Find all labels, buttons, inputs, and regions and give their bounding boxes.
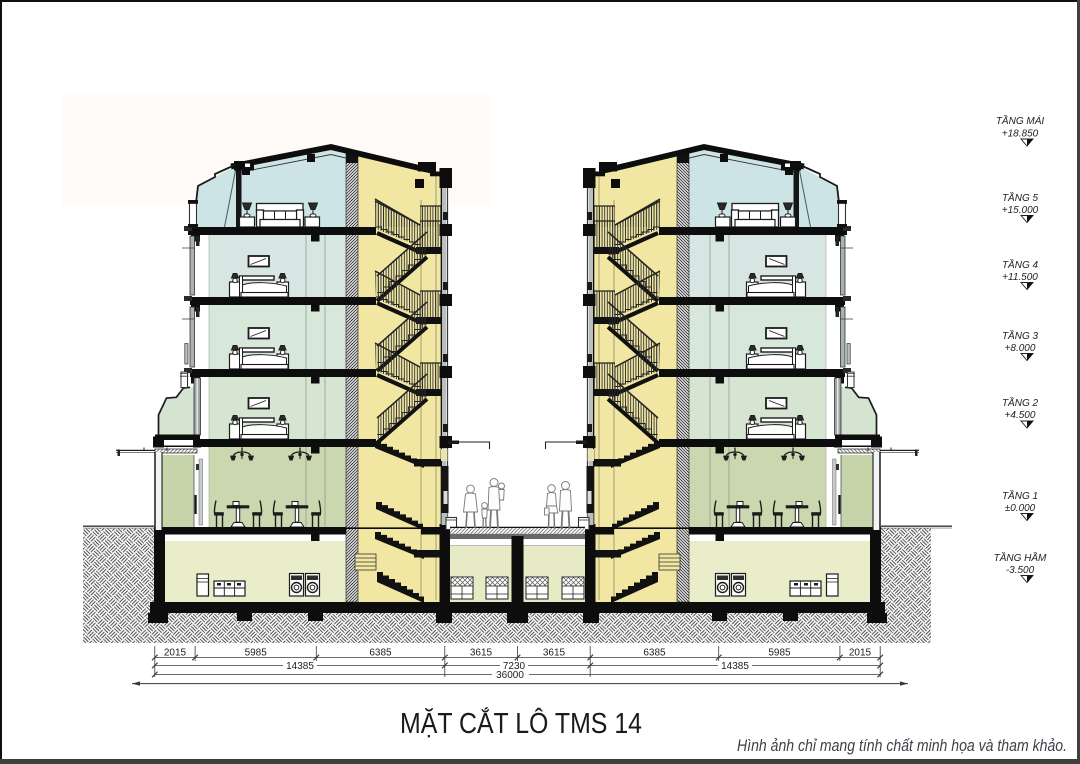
svg-text:2015: 2015 [164,648,187,659]
svg-text:5985: 5985 [245,648,268,659]
svg-text:36000: 36000 [496,670,524,681]
svg-text:TẦNG 1: TẦNG 1 [1002,489,1038,502]
svg-text:+4.500: +4.500 [1005,410,1036,421]
svg-text:2015: 2015 [849,648,872,659]
svg-text:TẦNG 5: TẦNG 5 [1002,191,1039,204]
svg-text:TẦNG MÁI: TẦNG MÁI [996,114,1045,127]
svg-text:+15.000: +15.000 [1002,205,1039,216]
svg-text:TẦNG 3: TẦNG 3 [1002,329,1039,342]
svg-text:14385: 14385 [286,661,314,672]
svg-text:TẦNG 4: TẦNG 4 [1002,258,1039,271]
svg-text:3615: 3615 [470,648,493,659]
svg-text:3615: 3615 [543,648,566,659]
svg-text:+18.850: +18.850 [1002,129,1039,140]
svg-text:TẦNG HẦM: TẦNG HẦM [994,551,1047,564]
svg-text:6385: 6385 [643,648,666,659]
svg-text:Hình ảnh chỉ mang tính chất mi: Hình ảnh chỉ mang tính chất minh họa và … [737,736,1067,755]
svg-text:5985: 5985 [768,648,791,659]
svg-text:+8.000: +8.000 [1005,343,1036,354]
svg-text:MẶT CẮT LÔ TMS 14: MẶT CẮT LÔ TMS 14 [400,706,642,740]
svg-text:14385: 14385 [721,661,749,672]
svg-text:TẦNG 2: TẦNG 2 [1002,396,1039,409]
svg-text:±0.000: ±0.000 [1005,503,1036,514]
svg-text:+11.500: +11.500 [1002,272,1038,283]
svg-text:6385: 6385 [369,648,392,659]
svg-text:-3.500: -3.500 [1006,565,1035,576]
